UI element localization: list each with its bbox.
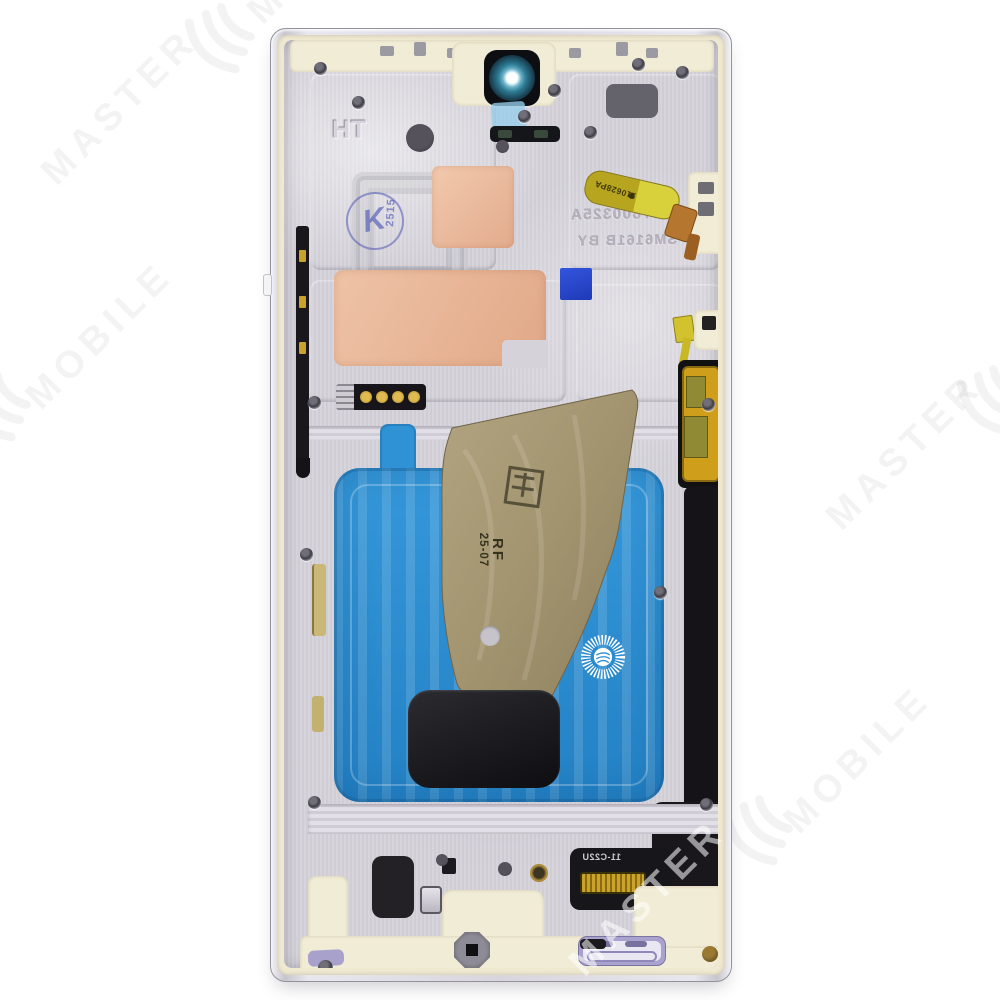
earpiece-recess	[606, 84, 658, 118]
screw	[300, 548, 313, 561]
phone-midframe: HT K 2515 HT800325A SM6161B BY 110628PA	[270, 28, 732, 982]
side-button-flex-end	[296, 458, 310, 478]
screw	[518, 110, 531, 123]
screw	[308, 396, 321, 409]
metal-clip	[420, 886, 442, 914]
plate-notch	[480, 626, 500, 646]
screw	[676, 66, 689, 79]
screw-hole	[436, 854, 448, 866]
brass-screw	[702, 946, 718, 962]
bronze-shield-plate	[424, 380, 644, 740]
frame-clip	[569, 48, 581, 58]
mic-grommet	[454, 932, 490, 968]
brass-contact-strip	[312, 564, 326, 636]
flex-contact-pad	[684, 416, 708, 458]
screw	[548, 84, 561, 97]
rf-stamp-text: RF	[489, 528, 506, 572]
bracket-window	[702, 316, 716, 330]
sunburst-logo	[580, 634, 626, 680]
screw	[318, 960, 333, 968]
side-key-tab	[263, 274, 272, 296]
thermal-pad-cut-corner	[502, 340, 548, 368]
product-photo-canvas: MASTER M MOBILE MASTER MASTER MOBILE	[0, 0, 1000, 1000]
frame-clip	[380, 46, 394, 56]
stamped-metal-plate: HT K 2515 HT800325A SM6161B BY 110628PA	[284, 40, 718, 968]
seal-stamp	[504, 466, 545, 509]
side-button-flex	[296, 226, 309, 461]
antenna-contact	[698, 202, 714, 216]
blue-square-sticker	[560, 268, 592, 300]
screw	[308, 796, 321, 809]
watermark-text: MASTER	[33, 20, 207, 194]
frame-clip	[414, 42, 426, 56]
gold-ring-hole	[530, 864, 548, 882]
thermal-pad-small	[432, 166, 514, 248]
graphite-pad	[408, 690, 560, 788]
right-antenna-flex	[678, 360, 718, 488]
frame-clip	[616, 42, 628, 56]
connector-code: 11-C22U	[582, 852, 621, 862]
embossed-frame-code: HT	[332, 116, 367, 145]
right-flex-ribbon	[684, 486, 718, 816]
screw	[654, 586, 667, 599]
ridge-band-bottom	[308, 804, 718, 834]
flex-label-sticker	[336, 384, 354, 410]
antenna-contact	[698, 182, 714, 194]
screw	[700, 798, 713, 811]
sensor-hole	[496, 140, 509, 153]
bottom-cutout	[372, 856, 414, 918]
rf-date-stamp: RF 25-07	[462, 528, 506, 572]
screw	[702, 398, 715, 411]
etched-model-code: SM6161B BY	[576, 231, 677, 249]
screw	[314, 62, 327, 75]
mic-hole	[406, 124, 434, 152]
screw-hole	[498, 862, 512, 876]
brass-contact-small	[312, 696, 324, 732]
watermark-text: MOBILE	[776, 678, 941, 843]
screw	[352, 96, 365, 109]
frame-clip	[646, 48, 658, 58]
watermark-text: MOBILE	[18, 254, 183, 419]
battery-connector-flex	[336, 384, 426, 410]
screw	[632, 58, 645, 71]
front-camera-module	[484, 50, 540, 106]
rf-stamp-date: 25-07	[477, 528, 489, 572]
ink-stamp-number: 2515	[384, 198, 397, 227]
screw	[584, 126, 597, 139]
